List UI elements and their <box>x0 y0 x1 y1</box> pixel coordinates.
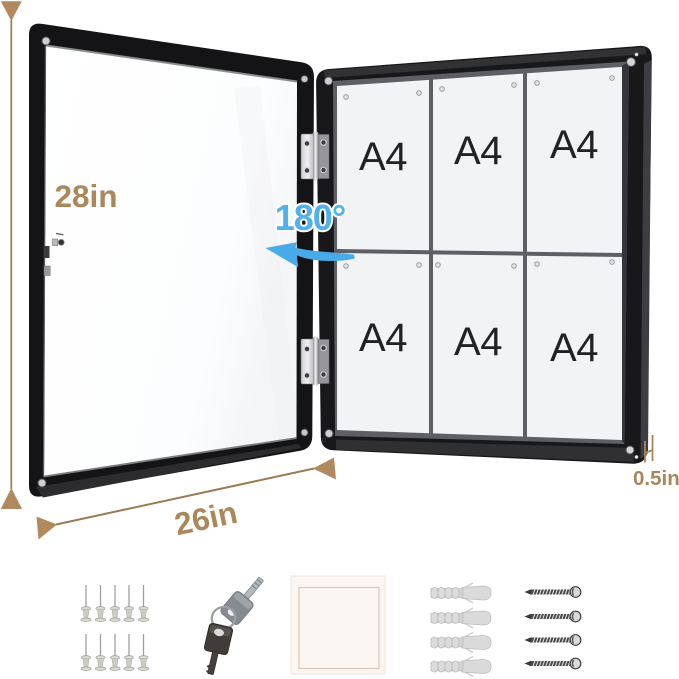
svg-text:A4: A4 <box>359 316 407 360</box>
svg-text:0.5in: 0.5in <box>633 467 679 490</box>
svg-text:A4: A4 <box>359 135 407 179</box>
svg-text:A4: A4 <box>454 129 502 173</box>
svg-text:A4: A4 <box>550 326 598 370</box>
svg-text:28in: 28in <box>54 178 117 214</box>
svg-text:180°: 180° <box>275 197 345 238</box>
svg-text:A4: A4 <box>454 320 502 364</box>
svg-text:A4: A4 <box>550 123 598 167</box>
